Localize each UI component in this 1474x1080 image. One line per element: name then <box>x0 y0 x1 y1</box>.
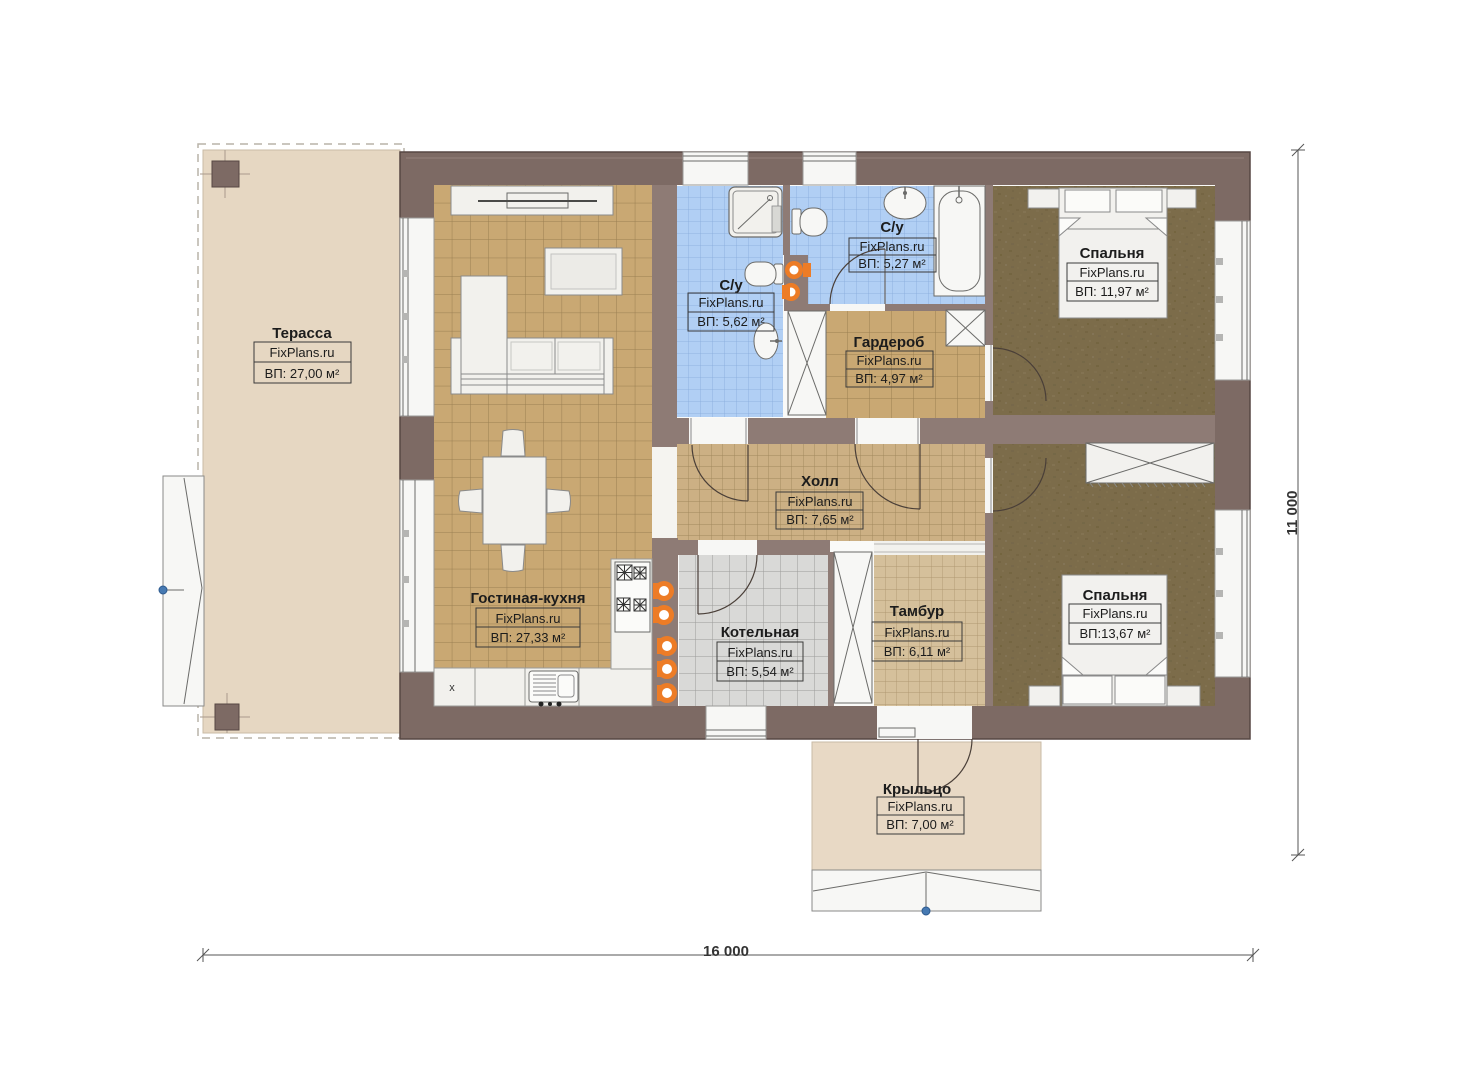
svg-text:Холл: Холл <box>801 473 839 490</box>
svg-text:ВП: 6,11 м²: ВП: 6,11 м² <box>884 644 951 659</box>
svg-text:ВП: 5,54 м²: ВП: 5,54 м² <box>726 664 794 679</box>
svg-text:ВП: 4,97 м²: ВП: 4,97 м² <box>855 371 923 386</box>
svg-text:ВП: 5,27 м²: ВП: 5,27 м² <box>858 256 926 271</box>
svg-text:FixPlans.ru: FixPlans.ru <box>1082 606 1147 621</box>
svg-text:Крыльцо: Крыльцо <box>883 781 951 798</box>
svg-text:С/у: С/у <box>880 219 904 236</box>
svg-text:Терасса: Терасса <box>272 325 332 342</box>
svg-text:ВП: 11,97 м²: ВП: 11,97 м² <box>1075 284 1149 299</box>
svg-text:Спальня: Спальня <box>1080 245 1145 262</box>
svg-text:С/у: С/у <box>719 277 743 294</box>
svg-text:ВП: 5,62 м²: ВП: 5,62 м² <box>697 314 765 329</box>
svg-text:ВП: 7,00 м²: ВП: 7,00 м² <box>886 817 954 832</box>
svg-text:FixPlans.ru: FixPlans.ru <box>887 799 952 814</box>
svg-text:Гостиная-кухня: Гостиная-кухня <box>471 590 586 607</box>
svg-text:FixPlans.ru: FixPlans.ru <box>787 494 852 509</box>
svg-text:FixPlans.ru: FixPlans.ru <box>495 611 560 626</box>
svg-text:Тамбур: Тамбур <box>890 603 944 620</box>
svg-text:ВП:13,67 м²: ВП:13,67 м² <box>1079 626 1151 641</box>
svg-text:FixPlans.ru: FixPlans.ru <box>856 353 921 368</box>
svg-text:ВП: 7,65 м²: ВП: 7,65 м² <box>786 512 854 527</box>
svg-text:FixPlans.ru: FixPlans.ru <box>1079 265 1144 280</box>
svg-text:FixPlans.ru: FixPlans.ru <box>884 625 949 640</box>
svg-text:ВП: 27,33 м²: ВП: 27,33 м² <box>491 630 566 645</box>
svg-text:Гардероб: Гардероб <box>854 334 925 351</box>
svg-text:FixPlans.ru: FixPlans.ru <box>727 645 792 660</box>
svg-text:16 000: 16 000 <box>703 943 749 960</box>
svg-text:FixPlans.ru: FixPlans.ru <box>269 345 334 360</box>
svg-text:FixPlans.ru: FixPlans.ru <box>859 239 924 254</box>
svg-text:Котельная: Котельная <box>721 624 800 641</box>
svg-text:ВП: 27,00 м²: ВП: 27,00 м² <box>265 366 340 381</box>
svg-text:x: x <box>449 682 455 694</box>
svg-text:FixPlans.ru: FixPlans.ru <box>698 295 763 310</box>
svg-text:11 000: 11 000 <box>1284 490 1301 535</box>
svg-text:Спальня: Спальня <box>1083 587 1148 604</box>
